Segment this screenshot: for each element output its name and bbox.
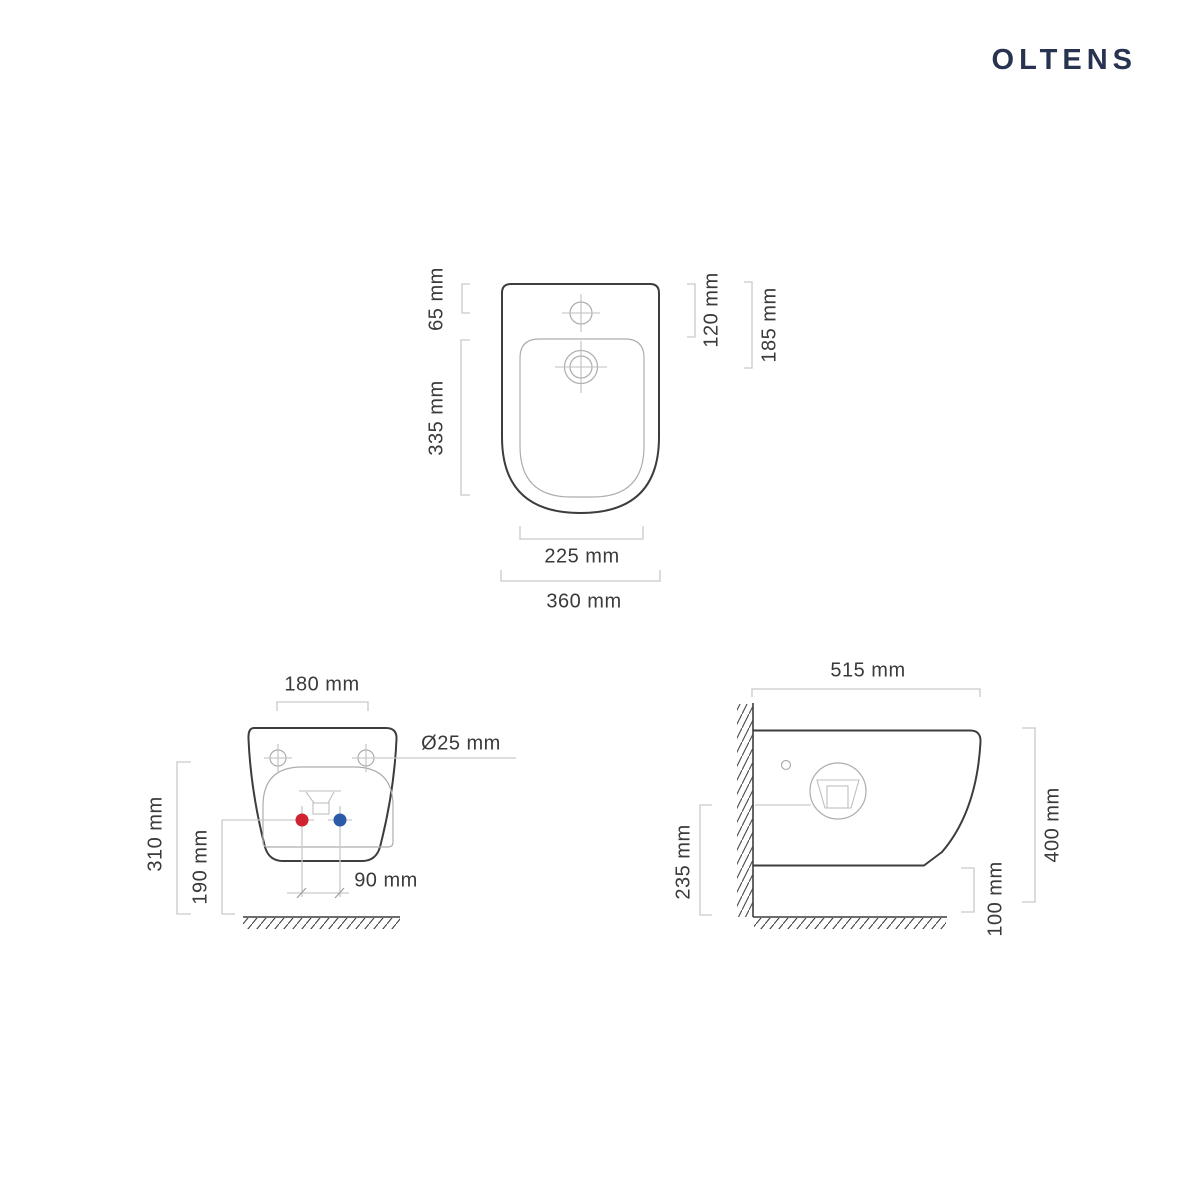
front-view-basin-arch	[263, 767, 393, 847]
top-dim-185-label: 185 mm	[759, 287, 782, 362]
floor-hatch	[754, 918, 946, 929]
top-view-basin-outline	[520, 339, 644, 497]
wall-hatch	[737, 704, 753, 917]
dim-bracket-360	[501, 570, 660, 581]
front-dim-90-label: 90 mm	[354, 870, 418, 893]
front-view-outline	[248, 728, 396, 861]
dim-bracket-235	[700, 805, 712, 915]
dim-bracket-185	[744, 282, 752, 368]
dim-bracket-400	[1022, 728, 1035, 902]
dim-bracket-120	[687, 284, 695, 337]
front-dim-diameter-label: Ø25 mm	[421, 733, 501, 756]
dim-bracket-65	[462, 284, 470, 313]
top-dim-120-label: 120 mm	[701, 272, 724, 347]
side-view-outline	[753, 731, 981, 866]
spout-side-icon	[810, 763, 866, 819]
overflow-hole-icon	[782, 761, 791, 770]
side-dim-235-label: 235 mm	[673, 824, 696, 899]
dim-bracket-100	[961, 868, 974, 912]
front-dim-180-label: 180 mm	[284, 674, 359, 697]
hot-water-dot	[296, 814, 309, 827]
front-dim-190-label: 190 mm	[190, 829, 213, 904]
dim-bracket-225	[520, 526, 643, 539]
spout-front-icon	[299, 791, 341, 814]
dim-bracket-180	[277, 702, 368, 711]
top-dim-335-label: 335 mm	[426, 380, 449, 455]
top-dim-225-label: 225 mm	[544, 546, 619, 569]
top-dim-360-label: 360 mm	[546, 591, 621, 614]
side-dim-515-label: 515 mm	[830, 660, 905, 683]
top-dim-65-label: 65 mm	[426, 267, 449, 331]
front-dim-310-label: 310 mm	[145, 796, 168, 871]
dim-bracket-335	[461, 340, 470, 495]
floor-hatch	[243, 918, 400, 929]
side-dim-100-label: 100 mm	[985, 861, 1008, 936]
cold-water-dot	[334, 814, 347, 827]
dim-bracket-190	[222, 820, 235, 914]
technical-drawing-sheet: OLTENS	[0, 0, 1200, 1200]
dim-bracket-515	[752, 689, 980, 697]
side-dim-400-label: 400 mm	[1042, 787, 1065, 862]
